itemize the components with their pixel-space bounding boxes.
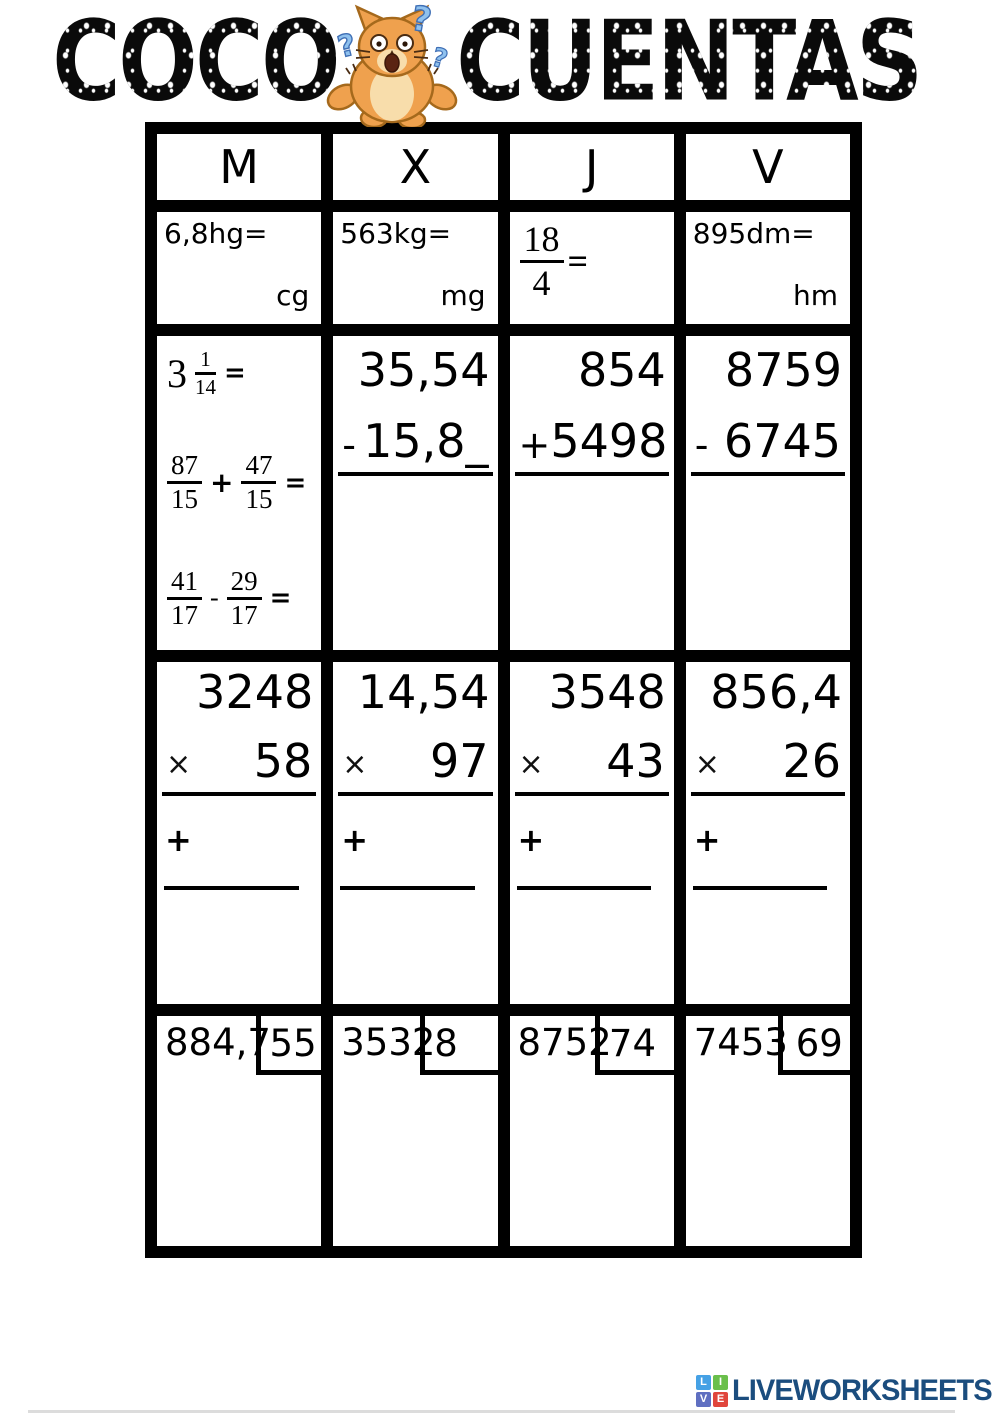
mixed-number-problem: 3 1 14 = [167, 348, 313, 398]
fraction-subtraction-problem: 41 17 - 29 17 = [167, 567, 313, 630]
plus-sign: + [333, 796, 497, 856]
sum-line [340, 886, 475, 890]
answer-area[interactable] [333, 1090, 497, 1246]
equals-sign: = [270, 583, 292, 613]
fraction-numerator: 29 [227, 567, 262, 600]
plus-sign: + [157, 796, 321, 856]
day-header-martes: M [157, 134, 321, 200]
sum-line [517, 886, 652, 890]
multiplicand: 856,4 [686, 662, 850, 716]
answer-area[interactable] [510, 901, 674, 1004]
day-header-miercoles: X [333, 134, 497, 200]
fraction-numerator: 18 [520, 220, 564, 263]
multiplicand: 14,54 [333, 662, 497, 716]
minus-sign: - [210, 583, 219, 613]
day-header-jueves: J [510, 134, 674, 200]
day-label: X [400, 144, 432, 190]
day-label: V [752, 144, 783, 190]
subtraction-problem: 8759 - 6745 [686, 336, 850, 650]
liveworksheets-tiles-icon: L I V E [696, 1375, 728, 1407]
multiply-sign: × [166, 750, 191, 788]
division-bracket-vertical [595, 1016, 600, 1074]
minus-sign: - [695, 426, 709, 468]
logo-tile-i: I [713, 1375, 728, 1390]
dividend: 7453 [694, 1024, 788, 1061]
multiplication-problem: 14,54 × 97 + [333, 662, 497, 1004]
logo-tile-e: E [713, 1392, 728, 1407]
fraction-problems-cell: 3 1 14 = 87 15 + 47 15 = 41 17 [157, 336, 321, 650]
division-problem: 884,7 55 [157, 1016, 321, 1246]
fraction-numerator: 41 [167, 567, 202, 600]
fraction-numerator: 87 [167, 451, 202, 484]
answer-area[interactable] [510, 262, 674, 324]
division-bracket-horizontal [778, 1070, 850, 1075]
multiply-sign: × [519, 750, 544, 788]
answer-area[interactable] [167, 514, 313, 567]
svg-text:?: ? [428, 42, 451, 75]
division-bracket-horizontal [595, 1070, 674, 1075]
fraction-denominator: 17 [167, 600, 202, 630]
confused-cat-illustration: ? ? ? [316, 0, 468, 127]
answer-area[interactable] [333, 901, 497, 1004]
subtraction-problem: 35,54 - 15,8_ [333, 336, 497, 650]
divisor: 69 [796, 1025, 843, 1062]
multiplier: 97 [430, 734, 489, 788]
title-word-coco: COCO [52, 4, 338, 122]
answer-area[interactable] [510, 512, 674, 650]
liveworksheets-wordmark: LIVEWORKSHEETS [732, 1374, 992, 1408]
day-header-viernes: V [686, 134, 850, 200]
day-label: J [585, 144, 599, 190]
multiplicand: 3548 [510, 662, 674, 716]
day-label: M [219, 144, 259, 190]
conversion-expression: 6,8hg= [164, 217, 268, 250]
conversion-problem-hg-cg: 6,8hg= cg [157, 212, 321, 324]
sum-line [693, 886, 828, 890]
multiplicand: 3248 [157, 662, 321, 716]
worksheet-table: M X J V 6,8hg= cg 563kg= mg 18 4 = 895dm… [145, 122, 862, 1258]
multiplier: 26 [782, 734, 841, 788]
division-bracket-vertical [778, 1016, 783, 1074]
answer-area[interactable] [157, 901, 321, 1004]
addend-2: 5498 [550, 414, 667, 468]
division-problem: 7453 69 [686, 1016, 850, 1246]
answer-area[interactable] [157, 1090, 321, 1246]
sum-line [164, 886, 299, 890]
fraction-numerator: 47 [241, 451, 276, 484]
answer-area[interactable] [333, 512, 497, 650]
multiply-sign: × [695, 750, 720, 788]
division-bracket-vertical [256, 1016, 261, 1074]
fraction-to-decimal-problem: 18 4 = [510, 212, 674, 324]
multiplication-problem: 3248 × 58 + [157, 662, 321, 1004]
divisor: 55 [270, 1025, 317, 1062]
multiplier: 58 [254, 734, 313, 788]
answer-area[interactable] [510, 1090, 674, 1246]
minus-sign: - [342, 426, 356, 468]
plus-sign: + [510, 796, 674, 856]
answer-area[interactable] [333, 262, 497, 324]
conversion-expression: 895dm= [693, 217, 815, 250]
answer-area[interactable] [157, 262, 321, 324]
cat-icon: ? ? ? [316, 0, 468, 127]
multiplication-problem: 3548 × 43 + [510, 662, 674, 1004]
addition-problem: 854 + 5498 [510, 336, 674, 650]
equals-sign: = [224, 358, 246, 388]
minuend: 35,54 [333, 336, 497, 394]
division-bracket-vertical [420, 1016, 425, 1074]
answer-area[interactable] [686, 901, 850, 1004]
svg-text:?: ? [334, 27, 359, 65]
division-bracket-horizontal [256, 1070, 322, 1075]
whole-number: 3 [167, 350, 187, 397]
answer-area[interactable] [686, 262, 850, 324]
svg-text:?: ? [408, 0, 434, 41]
subtrahend: 15,8_ [363, 414, 488, 468]
minuend: 8759 [686, 336, 850, 394]
fraction-denominator: 15 [241, 484, 276, 514]
divisor: 8 [434, 1025, 458, 1062]
multiplier: 43 [606, 734, 665, 788]
equals-sign: = [284, 468, 306, 498]
logo-tile-l: L [696, 1375, 711, 1390]
plus-sign: + [519, 426, 551, 468]
addend-1: 854 [510, 336, 674, 394]
fraction-denominator: 14 [195, 375, 216, 399]
logo-tile-v: V [696, 1392, 711, 1407]
multiplication-problem: 856,4 × 26 + [686, 662, 850, 1004]
fraction-denominator: 17 [227, 600, 262, 630]
plus-sign: + [686, 796, 850, 856]
fraction-denominator: 15 [167, 484, 202, 514]
answer-area[interactable] [686, 1090, 850, 1246]
plus-sign: + [210, 466, 233, 499]
division-bracket-horizontal [420, 1070, 497, 1075]
divisor: 74 [609, 1025, 656, 1062]
conversion-expression: 563kg= [340, 217, 451, 250]
conversion-problem-dm-hm: 895dm= hm [686, 212, 850, 324]
multiply-sign: × [342, 750, 367, 788]
conversion-problem-kg-mg: 563kg= mg [333, 212, 497, 324]
answer-area[interactable] [167, 398, 313, 451]
title-word-cuentas: CUENTAS [456, 4, 920, 122]
division-problem: 3532 8 [333, 1016, 497, 1246]
liveworksheets-logo: L I V E LIVEWORKSHEETS [696, 1374, 1000, 1408]
answer-area[interactable] [686, 512, 850, 650]
fraction-addition-problem: 87 15 + 47 15 = [167, 451, 313, 514]
subtrahend: 6745 [724, 414, 841, 468]
division-problem: 8752 74 [510, 1016, 674, 1246]
fraction-numerator: 1 [195, 348, 216, 375]
